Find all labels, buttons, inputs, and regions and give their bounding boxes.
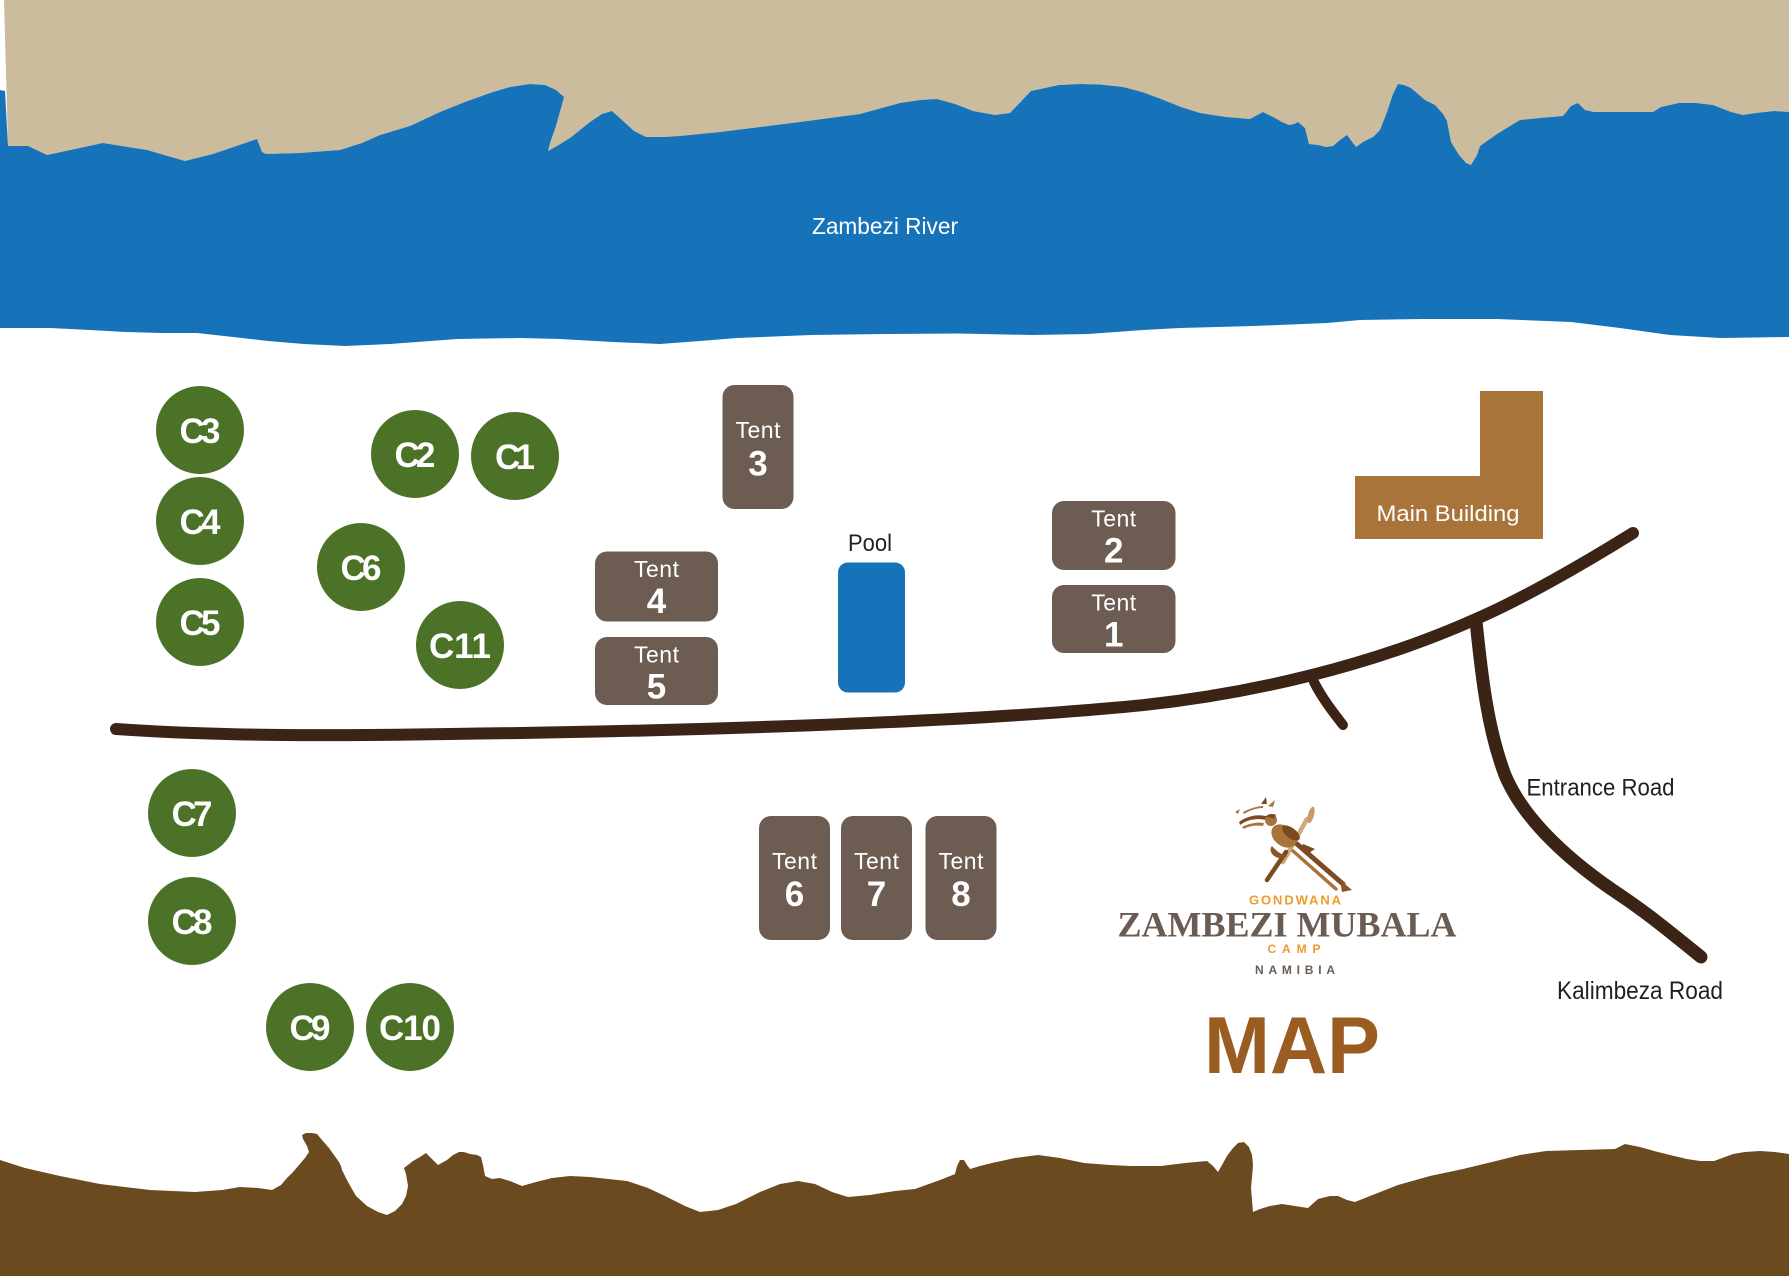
svg-text:Tent: Tent (772, 848, 818, 874)
svg-text:Main Building: Main Building (1377, 501, 1520, 526)
svg-text:3: 3 (748, 445, 767, 484)
svg-text:Entrance Road: Entrance Road (1527, 775, 1675, 802)
svg-text:ZAMBEZI MUBALA: ZAMBEZI MUBALA (1118, 905, 1457, 945)
svg-text:Tent: Tent (634, 642, 680, 668)
svg-text:Tent: Tent (634, 556, 680, 582)
svg-text:C5: C5 (180, 604, 221, 643)
svg-text:C9: C9 (290, 1009, 331, 1048)
svg-text:C7: C7 (172, 795, 213, 834)
svg-text:Pool: Pool (848, 530, 892, 557)
svg-text:2: 2 (1104, 532, 1123, 571)
svg-text:Tent: Tent (939, 848, 985, 874)
svg-text:C3: C3 (180, 412, 221, 451)
svg-text:Tent: Tent (1091, 506, 1137, 532)
svg-text:C1: C1 (495, 438, 535, 477)
svg-text:6: 6 (785, 875, 804, 914)
svg-text:Tent: Tent (854, 848, 900, 874)
svg-text:4: 4 (647, 582, 667, 621)
svg-text:1: 1 (1104, 616, 1123, 655)
svg-text:Kalimbeza Road: Kalimbeza Road (1557, 977, 1723, 1005)
svg-text:7: 7 (867, 875, 886, 914)
svg-text:C8: C8 (172, 903, 213, 942)
svg-text:Tent: Tent (736, 417, 782, 443)
svg-text:MAP: MAP (1204, 1001, 1380, 1091)
svg-text:5: 5 (647, 668, 666, 707)
svg-text:Zambezi River: Zambezi River (812, 213, 958, 239)
svg-text:C11: C11 (429, 627, 491, 666)
svg-text:C2: C2 (395, 436, 436, 475)
svg-text:C4: C4 (180, 503, 222, 542)
svg-text:8: 8 (951, 875, 970, 914)
svg-text:Tent: Tent (1091, 590, 1137, 616)
svg-text:C10: C10 (379, 1009, 441, 1048)
svg-text:C6: C6 (341, 549, 382, 588)
